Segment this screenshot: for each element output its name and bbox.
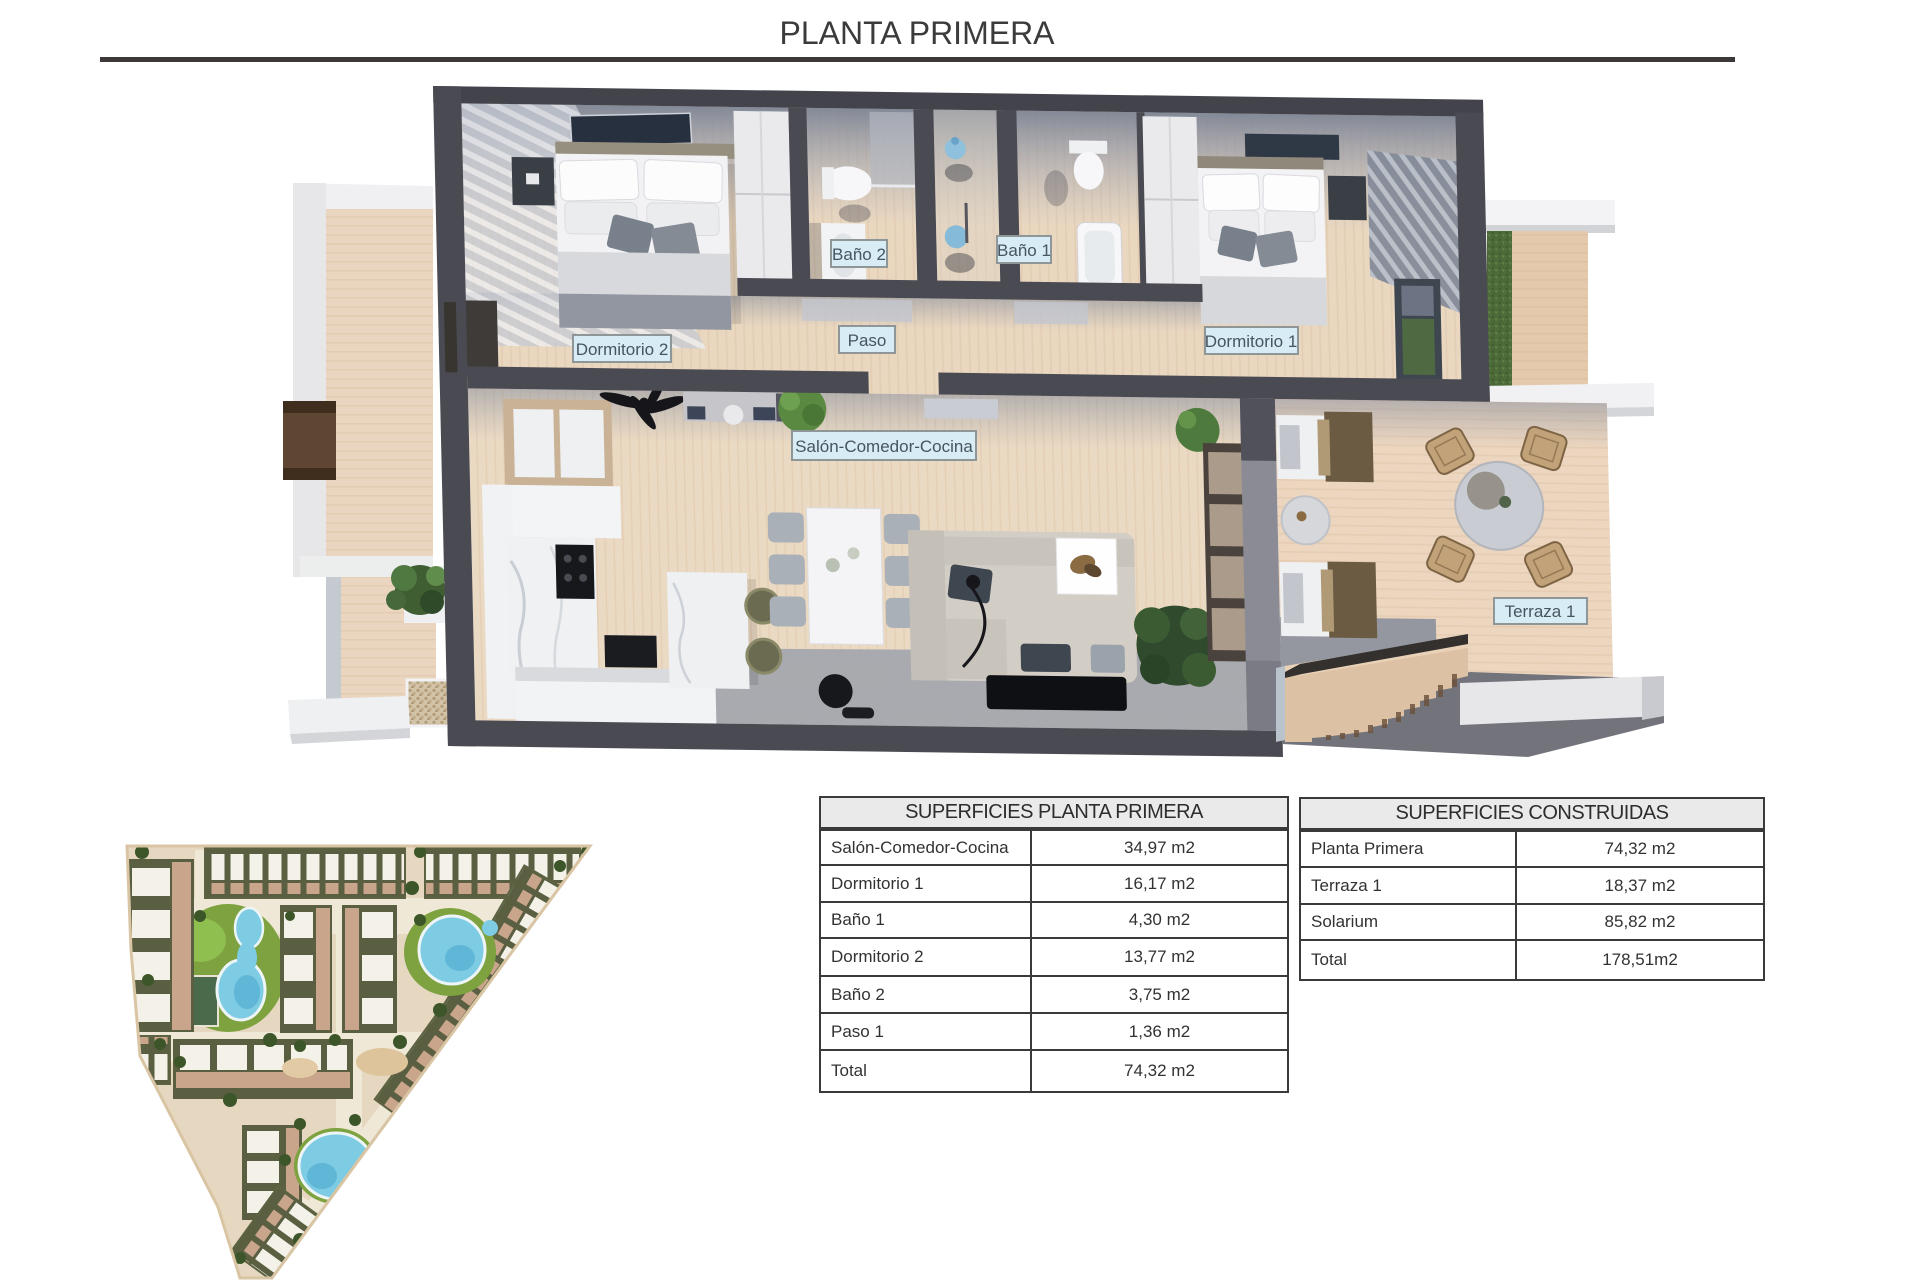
svg-text:Baño 1: Baño 1 <box>997 241 1051 260</box>
svg-text:Terraza 1: Terraza 1 <box>1505 602 1576 621</box>
svg-text:Paso: Paso <box>848 331 887 350</box>
svg-text:Dormitorio 2: Dormitorio 2 <box>576 340 669 359</box>
svg-text:Salón-Comedor-Cocina: Salón-Comedor-Cocina <box>795 437 973 456</box>
svg-text:Dormitorio 1: Dormitorio 1 <box>1205 332 1298 351</box>
svg-text:Baño 2: Baño 2 <box>832 245 886 264</box>
